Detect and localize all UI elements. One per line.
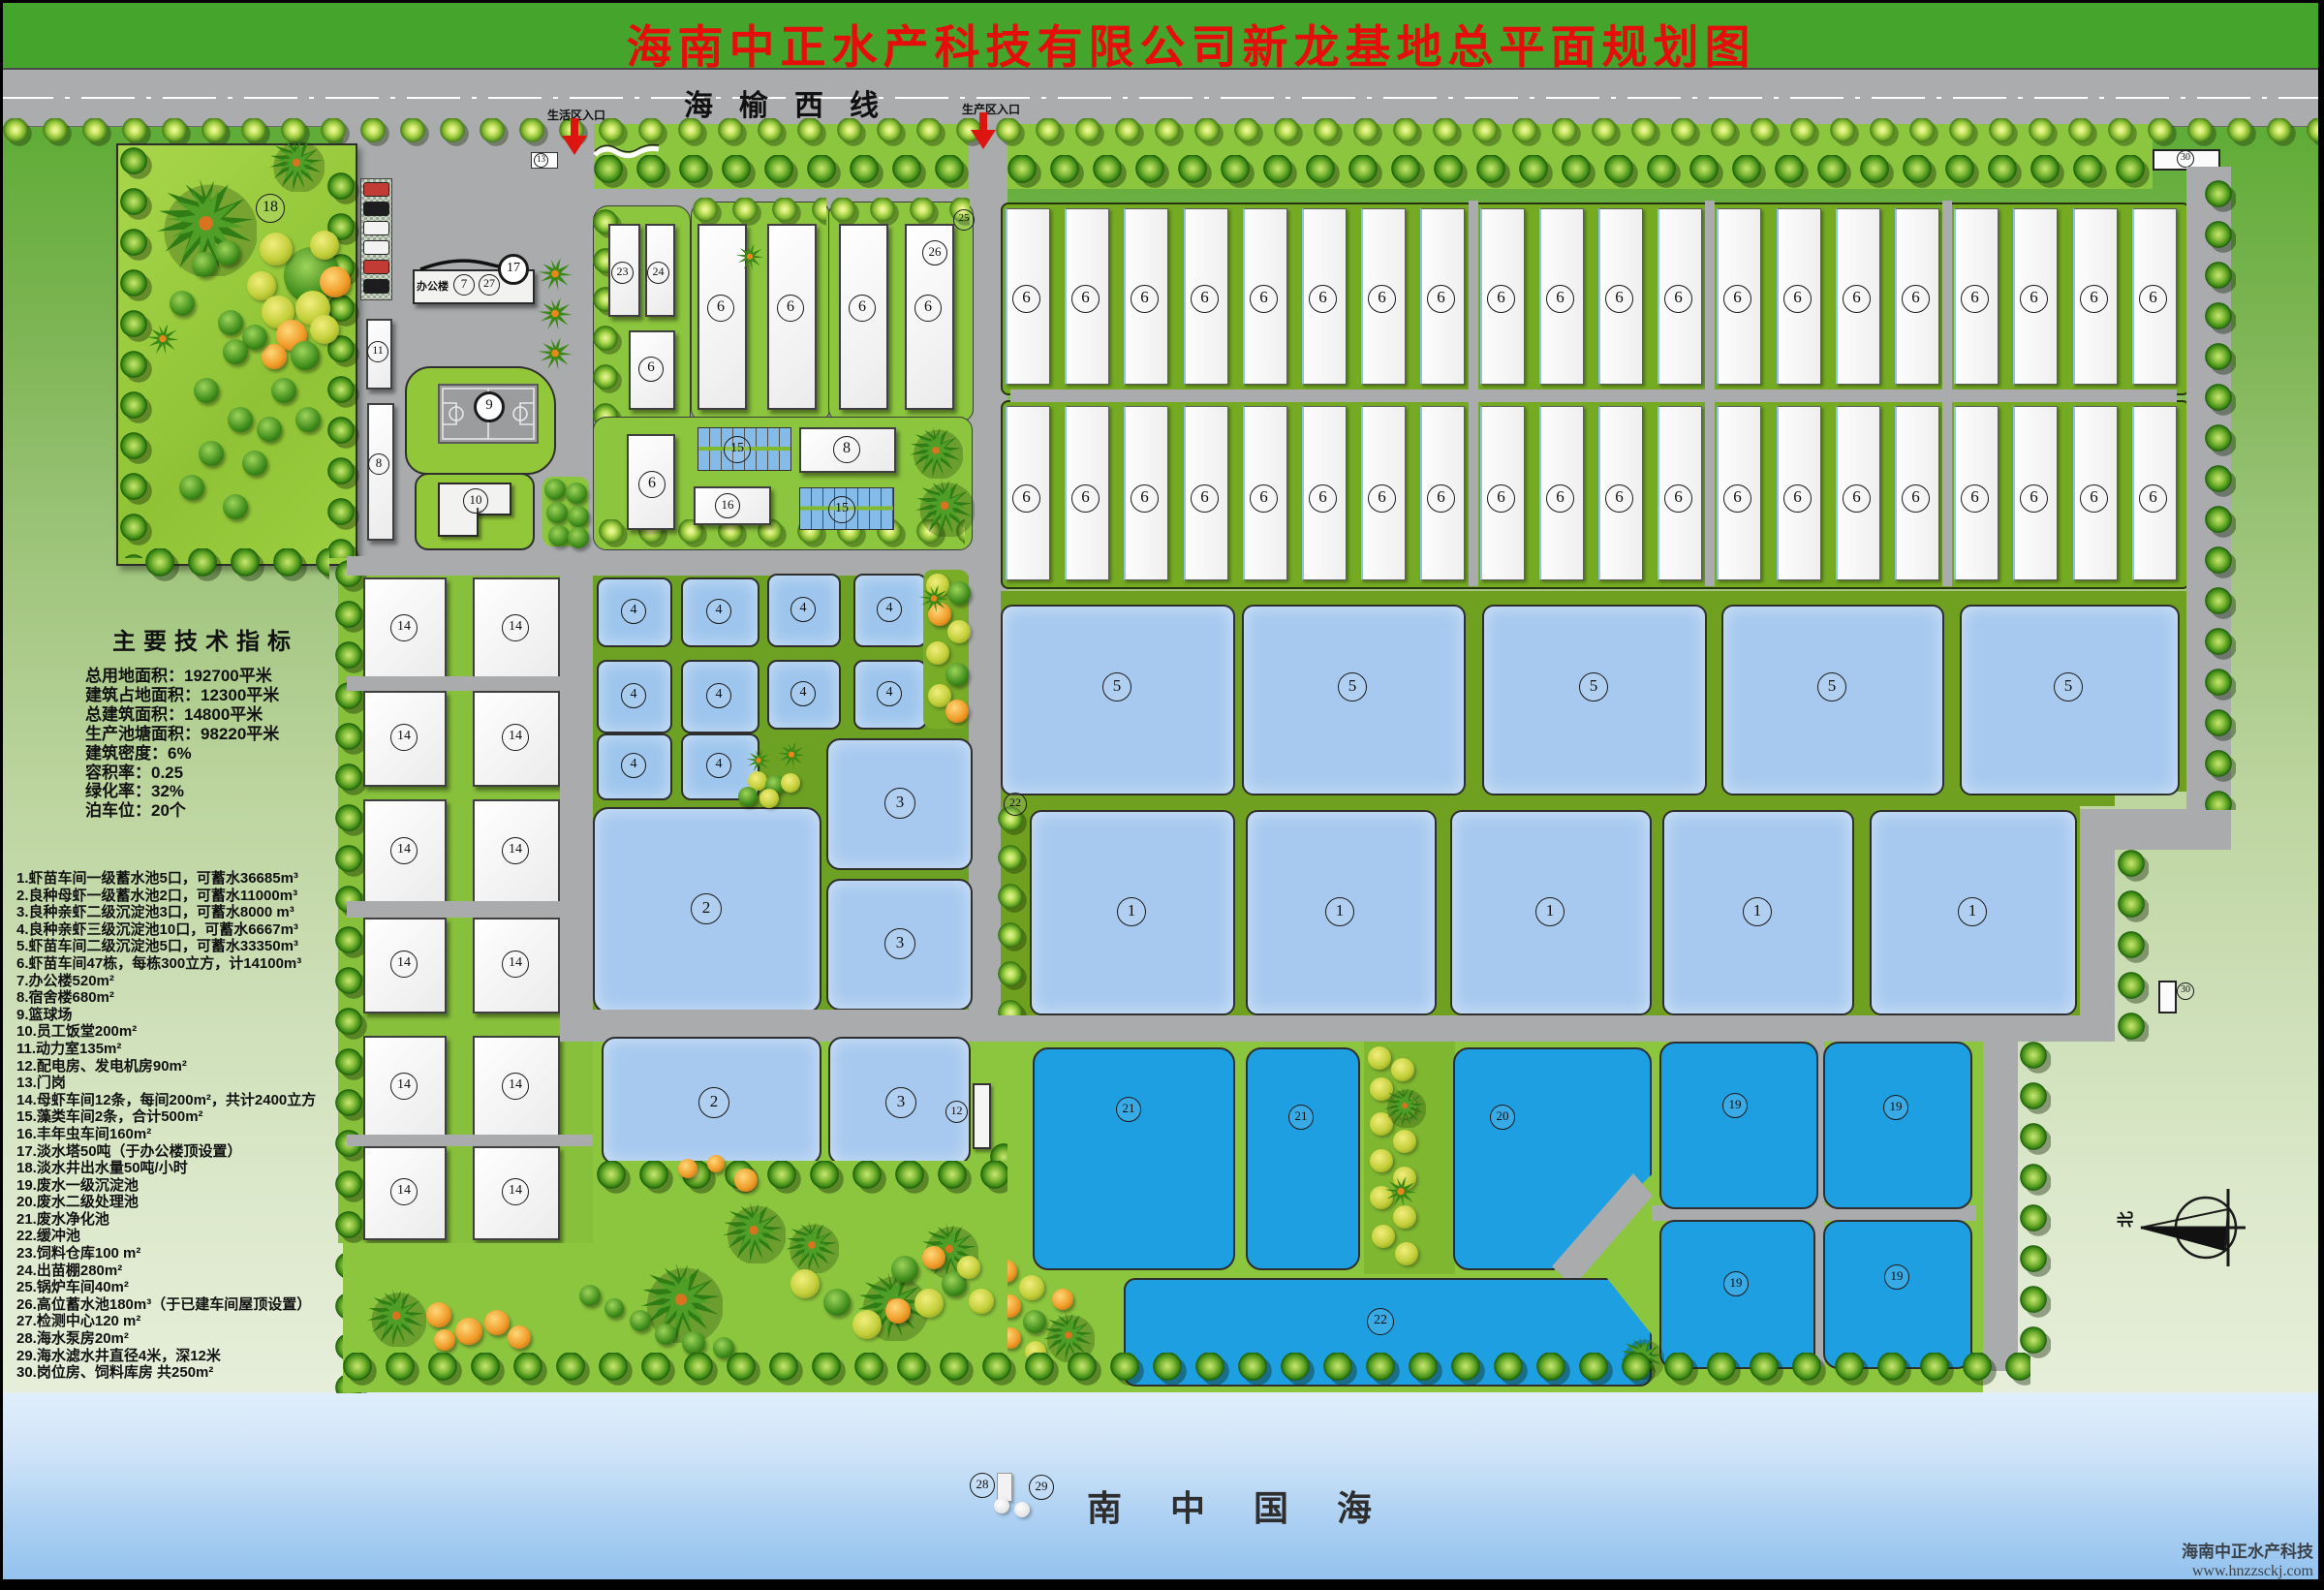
svg-text:北: 北 bbox=[2117, 1211, 2135, 1228]
